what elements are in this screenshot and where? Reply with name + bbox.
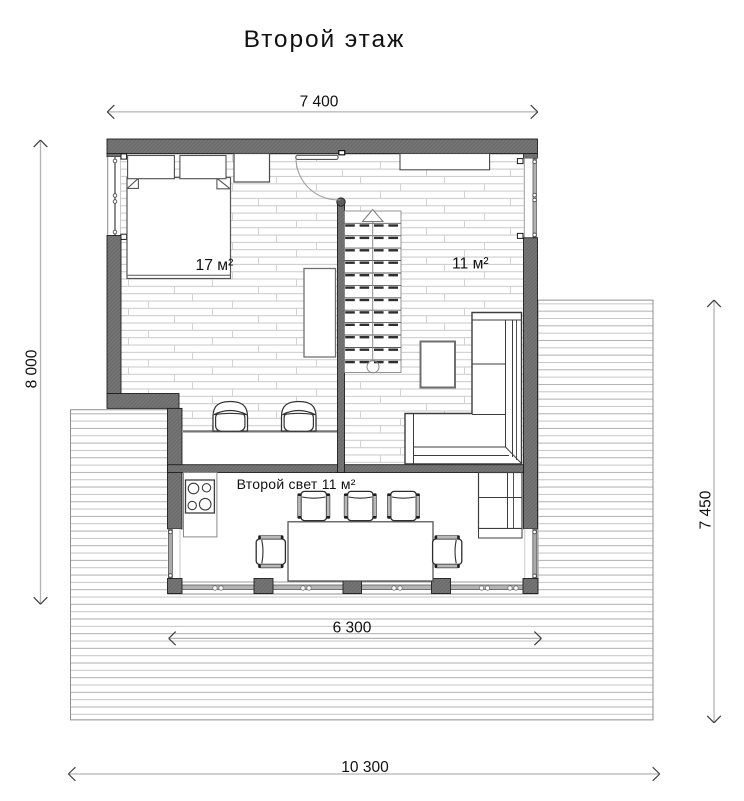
svg-text:Второй этаж: Второй этаж [244, 26, 406, 53]
svg-text:6 300: 6 300 [333, 620, 372, 637]
svg-text:Второй свет 11 м²: Второй свет 11 м² [237, 476, 356, 492]
svg-text:10 300: 10 300 [341, 759, 389, 776]
svg-text:7 400: 7 400 [300, 94, 339, 111]
svg-text:8 000: 8 000 [24, 349, 41, 388]
svg-text:11 м²: 11 м² [452, 256, 489, 273]
svg-text:17 м²: 17 м² [196, 257, 234, 274]
svg-text:7 450: 7 450 [698, 490, 715, 529]
